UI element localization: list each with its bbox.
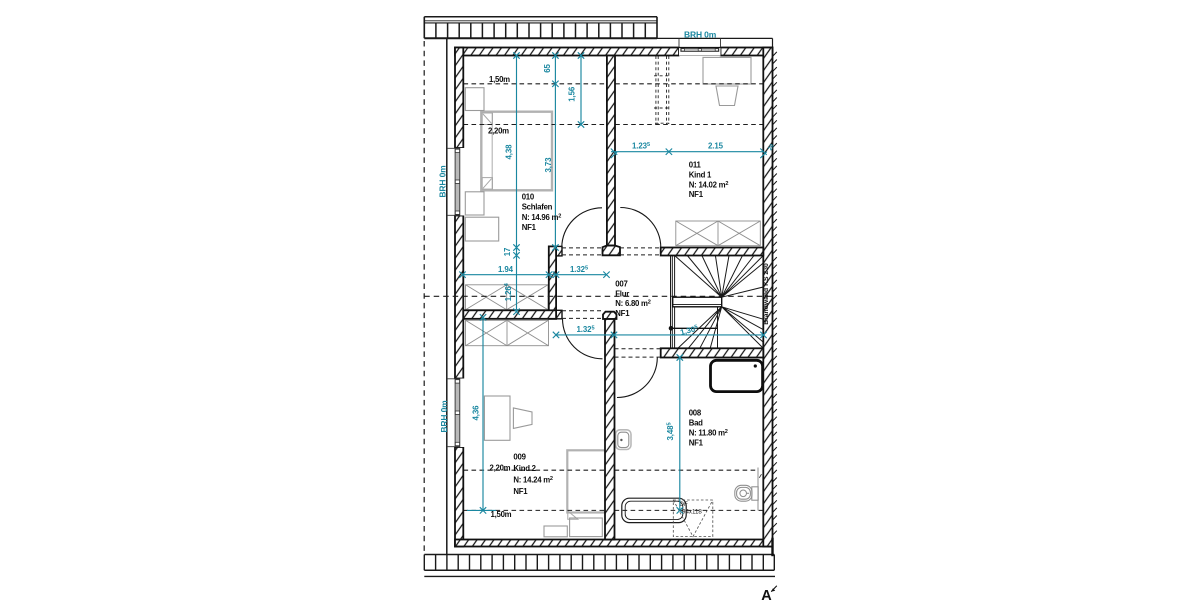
svg-text:Kind 1: Kind 1 xyxy=(689,171,712,180)
svg-text:A: A xyxy=(761,588,772,600)
svg-text:007: 007 xyxy=(615,280,627,289)
svg-text:4,36: 4,36 xyxy=(471,405,480,421)
svg-text:NF1: NF1 xyxy=(522,223,537,232)
svg-text:N: 6.80 m2: N: 6.80 m2 xyxy=(615,299,650,308)
svg-text:1,56: 1,56 xyxy=(567,86,576,102)
svg-text:N: 14.96 m2: N: 14.96 m2 xyxy=(522,213,562,222)
svg-text:Bad: Bad xyxy=(689,419,703,428)
svg-text:65: 65 xyxy=(543,64,552,73)
svg-text:N: 14.02 m2: N: 14.02 m2 xyxy=(689,181,729,190)
svg-text:BRH 0m: BRH 0m xyxy=(438,165,448,198)
svg-text:NF1: NF1 xyxy=(689,439,704,448)
svg-text:17: 17 xyxy=(503,247,512,256)
svg-text:NF1: NF1 xyxy=(615,309,630,318)
svg-text:Kind 2: Kind 2 xyxy=(513,464,536,473)
svg-text:Brandwand KS 230: Brandwand KS 230 xyxy=(763,263,770,325)
svg-text:2,20m: 2,20m xyxy=(488,126,509,135)
svg-text:010: 010 xyxy=(522,193,535,202)
svg-text:4,38: 4,38 xyxy=(505,144,514,160)
svg-text:N: 11.80 m2: N: 11.80 m2 xyxy=(689,429,728,438)
svg-text:2,20m: 2,20m xyxy=(490,463,511,472)
svg-text:DF: DF xyxy=(680,501,688,508)
svg-text:BRH 0m: BRH 0m xyxy=(439,400,449,433)
svg-text:011: 011 xyxy=(689,161,702,170)
svg-text:Schlafen: Schlafen xyxy=(522,203,553,212)
svg-text:1,50m: 1,50m xyxy=(491,510,512,519)
svg-text:NF1: NF1 xyxy=(689,190,704,199)
svg-text:1,50m: 1,50m xyxy=(489,75,510,84)
svg-text:009: 009 xyxy=(513,453,526,462)
svg-text:94x118: 94x118 xyxy=(682,509,702,516)
svg-text:Flur: Flur xyxy=(615,290,629,299)
svg-text:2.15: 2.15 xyxy=(708,142,724,151)
svg-text:NF1: NF1 xyxy=(513,487,528,496)
svg-text:1.94: 1.94 xyxy=(498,265,514,274)
svg-text:008: 008 xyxy=(689,409,702,418)
svg-text:3,73: 3,73 xyxy=(544,157,553,173)
svg-text:N: 14.24 m2: N: 14.24 m2 xyxy=(513,476,553,485)
svg-text:BRH 0m: BRH 0m xyxy=(684,29,717,39)
